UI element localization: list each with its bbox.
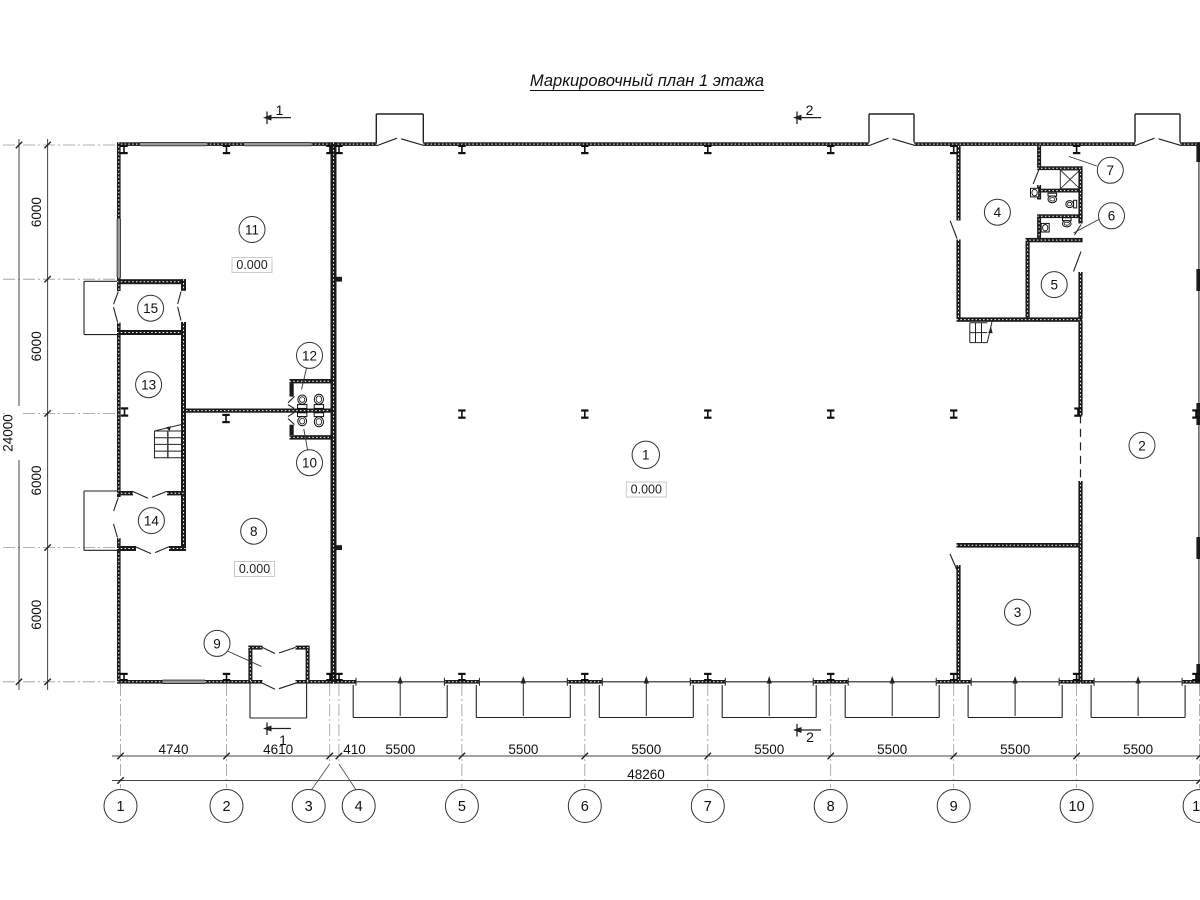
svg-text:8: 8 (827, 799, 835, 815)
svg-text:5: 5 (1050, 278, 1058, 293)
svg-text:1: 1 (116, 799, 124, 815)
svg-text:4: 4 (994, 205, 1002, 220)
svg-text:1: 1 (276, 102, 284, 118)
svg-text:5: 5 (458, 799, 466, 815)
svg-text:13: 13 (141, 378, 156, 393)
svg-text:5500: 5500 (508, 742, 538, 757)
svg-text:5500: 5500 (631, 742, 661, 757)
svg-text:14: 14 (144, 514, 160, 529)
svg-text:48260: 48260 (627, 767, 665, 782)
svg-text:410: 410 (343, 742, 366, 757)
svg-text:6: 6 (1108, 209, 1116, 224)
svg-text:9: 9 (950, 799, 958, 815)
svg-text:15: 15 (143, 301, 158, 316)
svg-text:0.000: 0.000 (631, 483, 662, 497)
svg-text:5500: 5500 (385, 742, 415, 757)
svg-text:24000: 24000 (1, 414, 16, 452)
svg-text:11: 11 (1192, 799, 1200, 815)
svg-text:3: 3 (1014, 605, 1022, 620)
svg-text:6: 6 (581, 799, 589, 815)
svg-text:9: 9 (213, 636, 221, 651)
svg-text:5500: 5500 (754, 742, 784, 757)
svg-text:6000: 6000 (29, 465, 44, 495)
svg-text:1: 1 (642, 448, 650, 463)
svg-text:2: 2 (1138, 438, 1146, 453)
svg-text:2: 2 (806, 729, 814, 745)
svg-text:12: 12 (302, 348, 317, 363)
svg-text:5500: 5500 (1000, 742, 1030, 757)
svg-text:3: 3 (305, 799, 313, 815)
svg-text:7: 7 (704, 799, 712, 815)
svg-text:0.000: 0.000 (236, 258, 267, 272)
svg-text:Маркировочный план 1 этажа: Маркировочный план 1 этажа (530, 72, 764, 90)
svg-text:6000: 6000 (29, 197, 44, 227)
svg-text:5500: 5500 (877, 742, 907, 757)
svg-text:6000: 6000 (29, 600, 44, 630)
svg-text:2: 2 (222, 799, 230, 815)
svg-text:0.000: 0.000 (239, 562, 270, 576)
svg-text:11: 11 (245, 222, 259, 237)
svg-text:5500: 5500 (1123, 742, 1153, 757)
svg-text:4: 4 (355, 799, 363, 815)
svg-text:6000: 6000 (29, 331, 44, 361)
svg-text:2: 2 (806, 102, 814, 118)
svg-text:7: 7 (1107, 163, 1115, 178)
svg-text:10: 10 (1069, 799, 1085, 815)
svg-text:10: 10 (302, 456, 317, 471)
svg-text:4740: 4740 (158, 742, 188, 757)
svg-text:4610: 4610 (263, 742, 293, 757)
svg-text:8: 8 (250, 524, 258, 539)
